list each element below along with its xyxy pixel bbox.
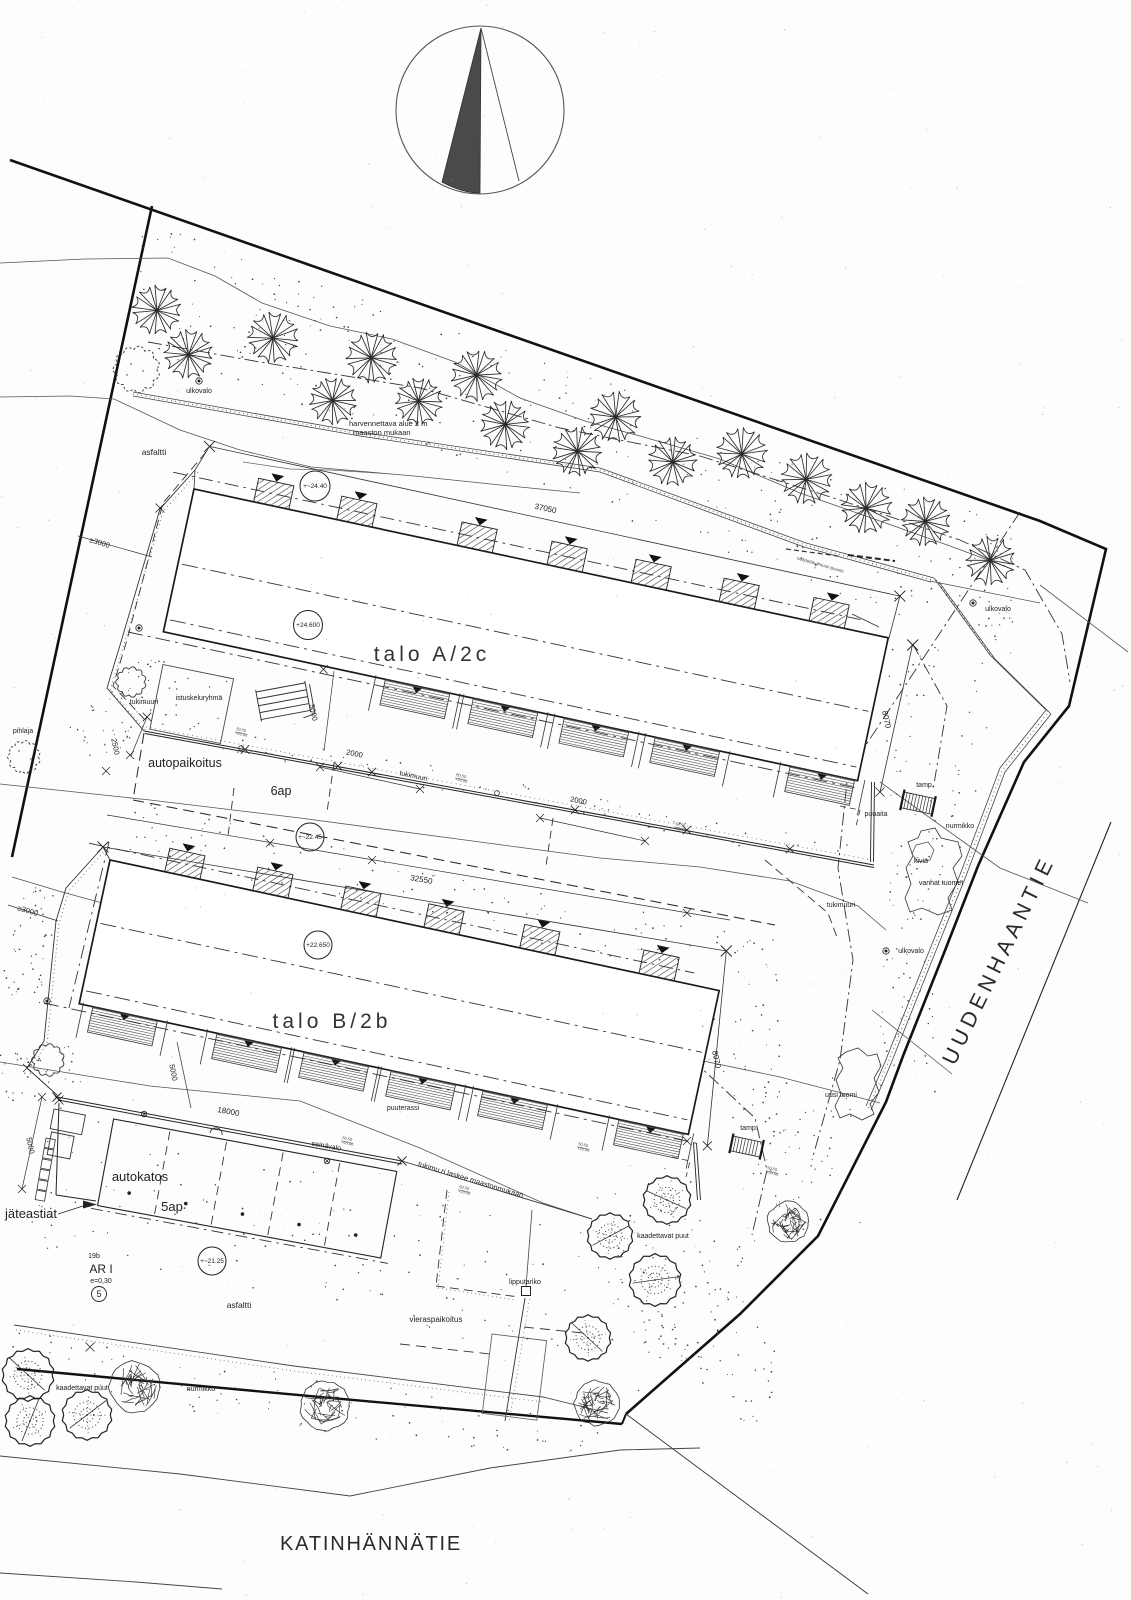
svg-text:autopaikoitus: autopaikoitus bbox=[148, 756, 222, 770]
svg-text:nurmikko: nurmikko bbox=[187, 1386, 216, 1393]
svg-text:tamp.: tamp. bbox=[740, 1125, 758, 1132]
svg-text:vanhat tuomet: vanhat tuomet bbox=[919, 880, 963, 887]
svg-text:asfaltti: asfaltti bbox=[227, 1300, 252, 1310]
svg-text:AR I: AR I bbox=[89, 1262, 112, 1276]
svg-text:kaadettavat puut: kaadettavat puut bbox=[637, 1233, 689, 1240]
svg-text:ulkovalo: ulkovalo bbox=[985, 606, 1011, 613]
svg-text:autokatos: autokatos bbox=[112, 1169, 169, 1184]
svg-text:tukimuuri: tukimuuri bbox=[827, 902, 856, 909]
svg-text:istuskeluryhmä: istuskeluryhmä bbox=[176, 695, 223, 702]
svg-text:nurmikko: nurmikko bbox=[946, 823, 975, 830]
svg-text:maaston mukaan: maaston mukaan bbox=[353, 428, 411, 437]
svg-text:e=0,30: e=0,30 bbox=[90, 1278, 112, 1285]
svg-text:5ap: 5ap bbox=[161, 1199, 183, 1214]
svg-text:pihlaja: pihlaja bbox=[13, 728, 33, 735]
svg-text:19b: 19b bbox=[88, 1253, 100, 1260]
svg-text:vieraspaikoitus: vieraspaikoitus bbox=[410, 1315, 463, 1324]
svg-text:+~22.45: +~22.45 bbox=[298, 834, 322, 841]
svg-text:jäteastiat: jäteastiat bbox=[4, 1206, 57, 1221]
svg-text:+22.650: +22.650 bbox=[306, 942, 330, 949]
svg-text:+24.600: +24.600 bbox=[296, 622, 320, 629]
svg-text:5: 5 bbox=[96, 1289, 101, 1299]
svg-text:KATINHÄNNÄTIE: KATINHÄNNÄTIE bbox=[280, 1533, 462, 1555]
svg-text:tamp.: tamp. bbox=[916, 782, 934, 789]
svg-text:lipputanko: lipputanko bbox=[509, 1279, 541, 1286]
svg-text:ulkovalo: ulkovalo bbox=[186, 388, 212, 395]
svg-text:puuaita: puuaita bbox=[865, 811, 888, 818]
svg-text:+~24.40: +~24.40 bbox=[303, 483, 327, 490]
svg-text:talo B/2b: talo B/2b bbox=[273, 1010, 392, 1033]
svg-text:ulkovalo: ulkovalo bbox=[898, 948, 924, 955]
svg-text:harvennettava alue 2 m: harvennettava alue 2 m bbox=[349, 419, 427, 428]
svg-text:asfaltti: asfaltti bbox=[142, 447, 167, 457]
svg-text:6ap: 6ap bbox=[271, 784, 292, 798]
svg-text:talo A/2c: talo A/2c bbox=[374, 643, 491, 666]
svg-text:+~21.25: +~21.25 bbox=[200, 1258, 224, 1265]
svg-text:uusi tuomi: uusi tuomi bbox=[825, 1092, 857, 1099]
svg-text:puuterassi: puuterassi bbox=[387, 1105, 420, 1112]
svg-text:kiviä: kiviä bbox=[914, 858, 928, 865]
